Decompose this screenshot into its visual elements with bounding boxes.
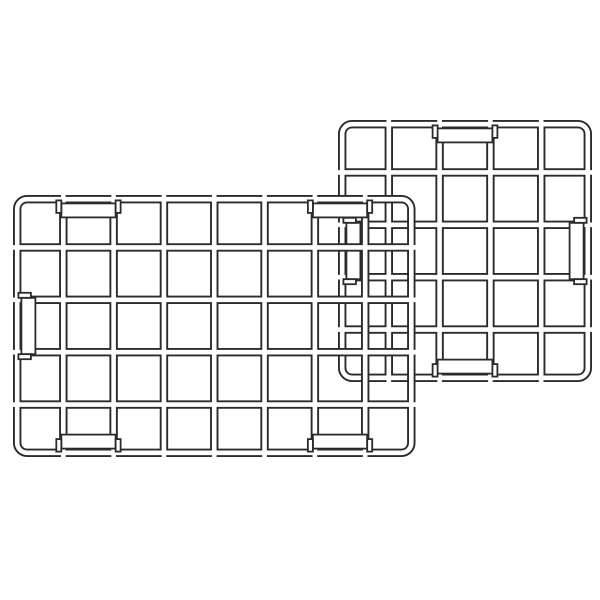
clip-tab	[433, 125, 438, 137]
clip-tab	[367, 200, 372, 213]
clip-bar	[438, 360, 493, 374]
clip-tab	[574, 279, 587, 284]
back-grid-panel-clip-bottom-3	[433, 360, 498, 377]
clip-tab	[574, 218, 587, 223]
front-grid-panel-clip-bottom-7	[308, 435, 372, 452]
grid-panels-illustration	[0, 0, 600, 600]
clip-tab	[308, 200, 313, 213]
clip-tab	[433, 364, 438, 377]
clip-bar	[438, 128, 493, 142]
clip-tab	[116, 200, 121, 213]
clip-tab	[492, 125, 497, 137]
front-grid-panel-clip-bottom-2	[56, 435, 120, 452]
clip-bar	[21, 298, 35, 354]
clip-tab	[343, 218, 356, 223]
front-grid-panel-clip-top-2	[56, 200, 120, 217]
back-grid-panel-clip-top-3	[433, 125, 498, 142]
clip-tab	[18, 354, 31, 359]
clip-tab	[343, 279, 356, 284]
grid-panels-svg	[0, 0, 600, 600]
clip-tab	[367, 439, 372, 452]
clip-tab	[56, 439, 61, 452]
front-grid-panel-clip-top-7	[308, 200, 372, 217]
clip-bar	[313, 203, 367, 217]
clip-tab	[308, 439, 313, 452]
clip-bar	[570, 223, 584, 279]
clip-bar	[61, 203, 115, 217]
clip-bar	[313, 435, 367, 449]
front-grid-panel-clip-left-3	[18, 293, 35, 359]
clip-bar	[61, 435, 115, 449]
clip-tab	[56, 200, 61, 213]
back-grid-panel-clip-right-3	[570, 218, 587, 284]
clip-tab	[492, 364, 497, 377]
clip-tab	[18, 293, 31, 298]
clip-tab	[116, 439, 121, 452]
